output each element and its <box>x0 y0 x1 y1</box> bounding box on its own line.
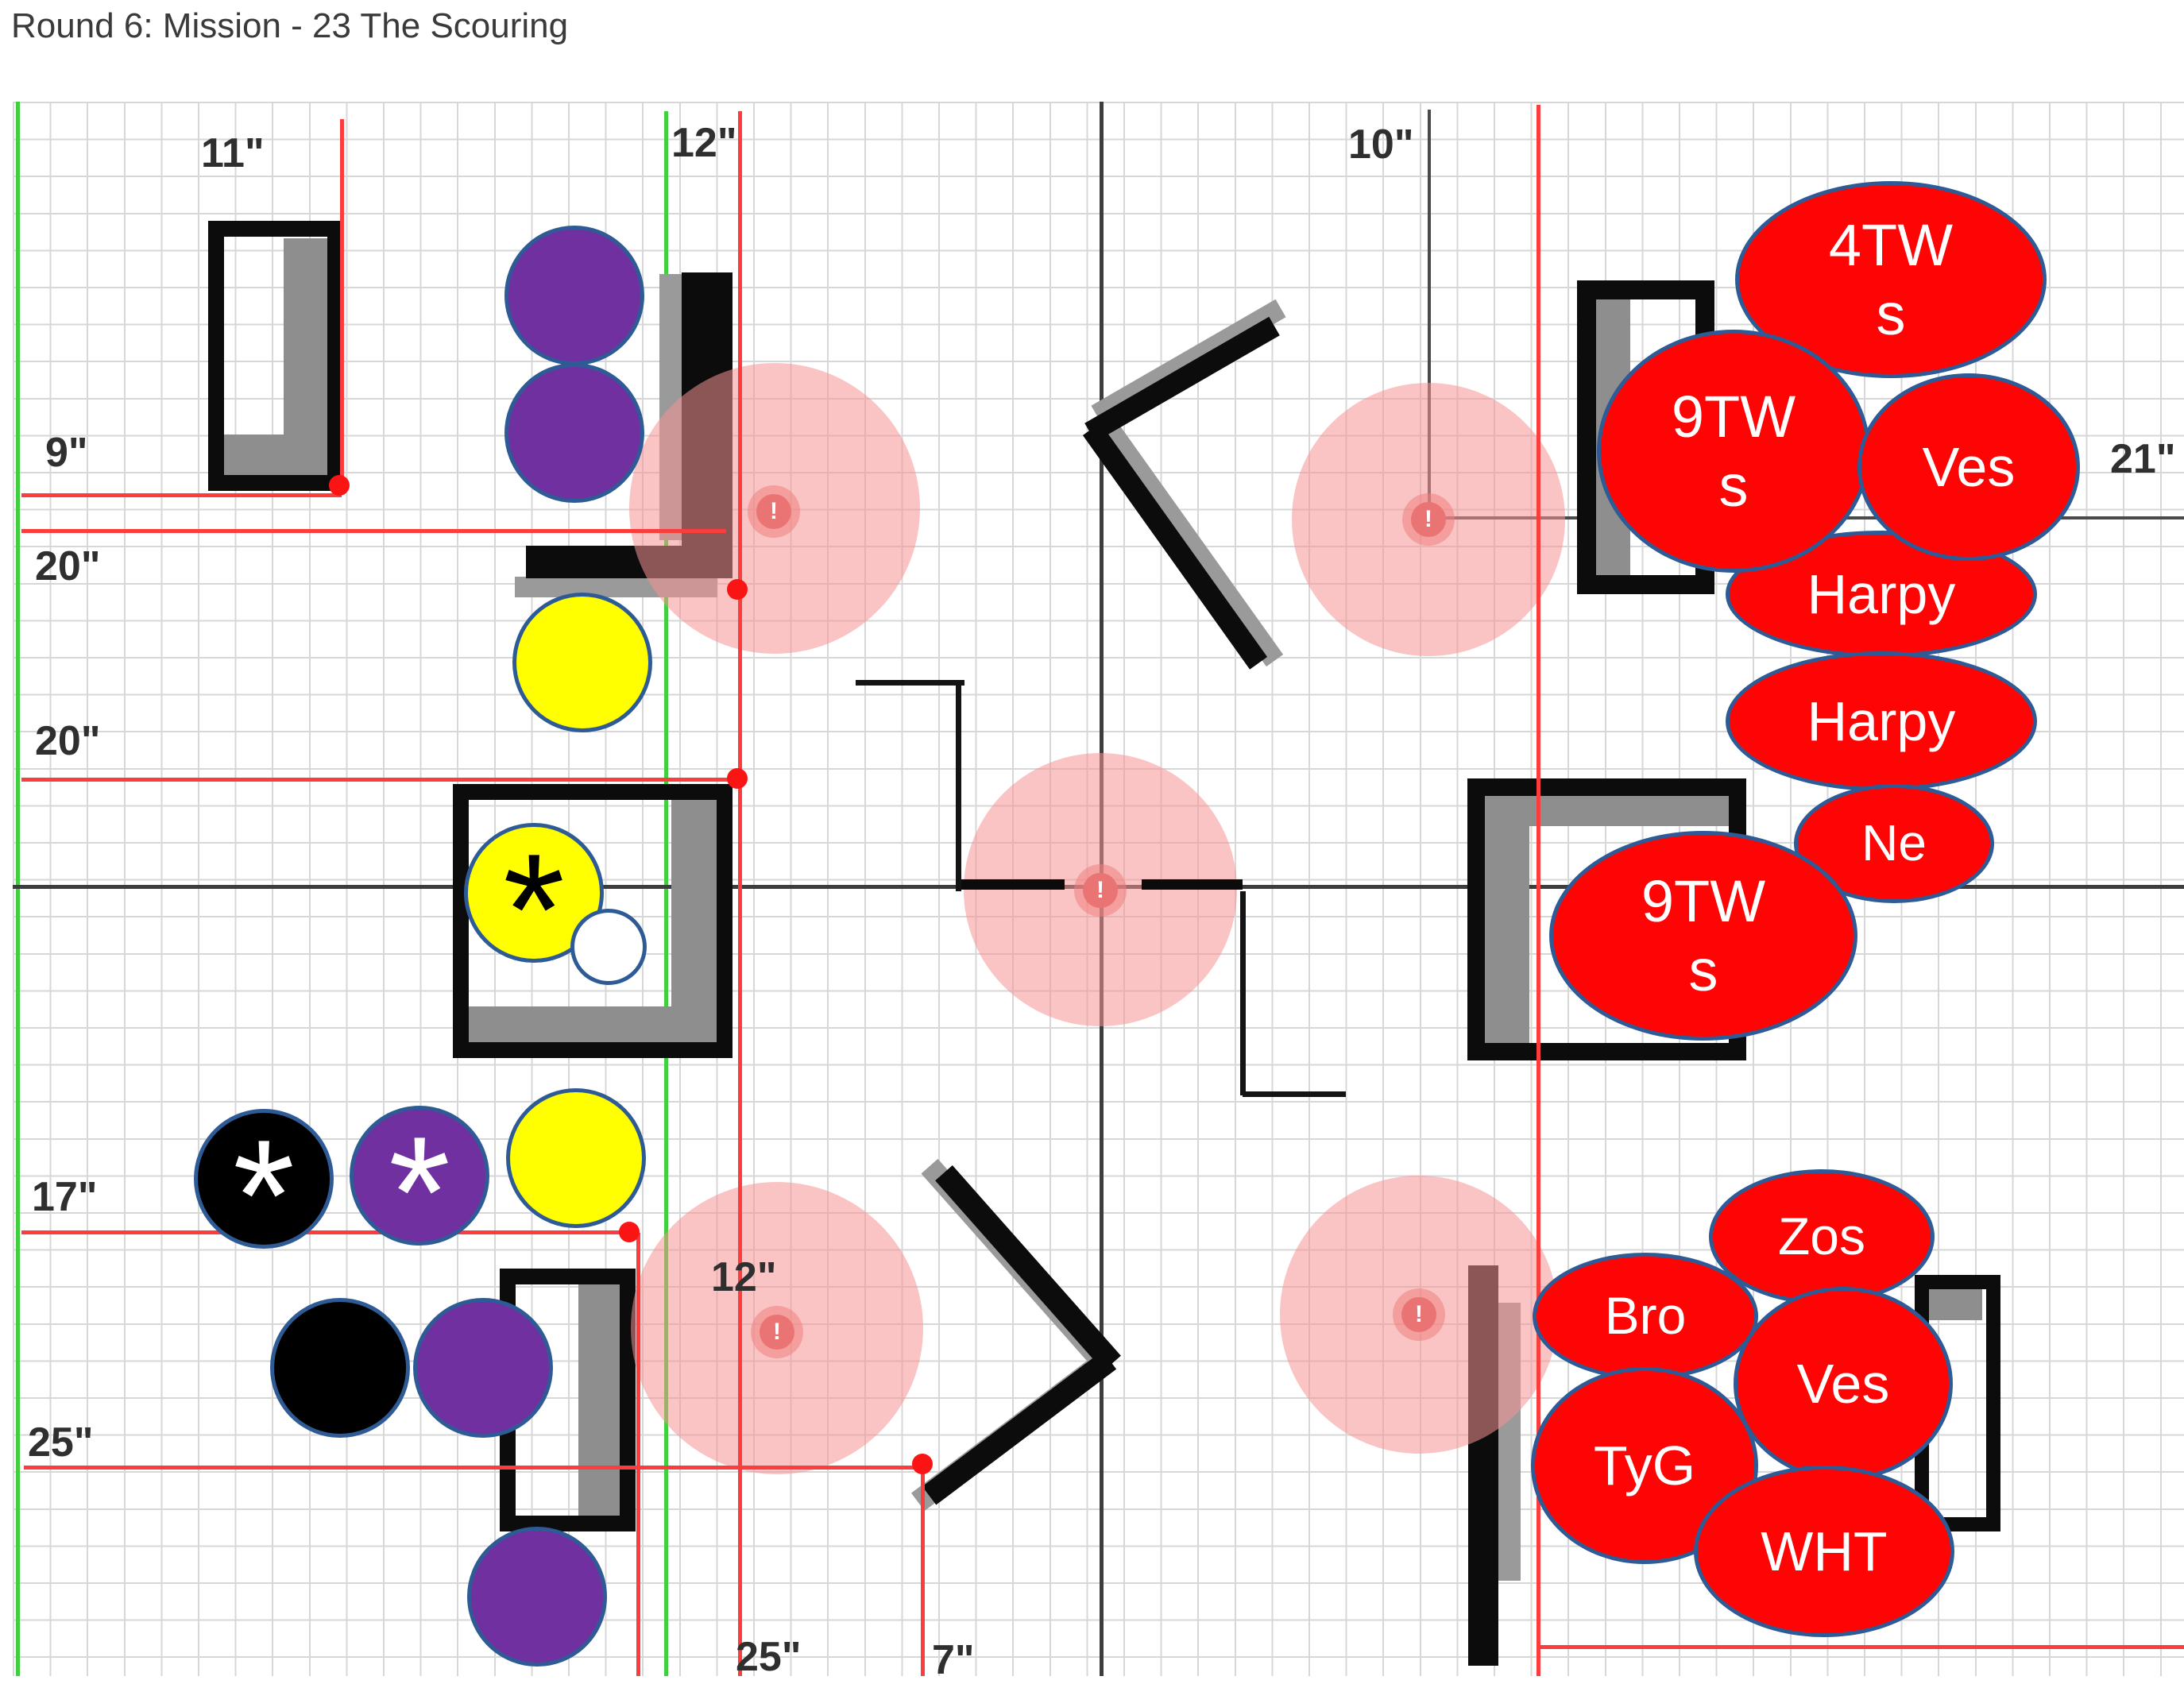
unit-wht[interactable]: WHT <box>1694 1466 1954 1637</box>
token-black-objective-holder[interactable]: * <box>194 1109 334 1249</box>
token-yellow-objective-holder-asterisk-icon: * <box>503 831 565 990</box>
zone-step-mid-right <box>1142 879 1243 890</box>
unit-bro[interactable]: Bro <box>1533 1253 1758 1380</box>
measure-dot-4 <box>619 1222 640 1242</box>
unit-9tws-top[interactable]: 9TW s <box>1597 330 1870 573</box>
measure-label-12in-bottom: 12" <box>711 1253 777 1301</box>
zone-step-bottom-v <box>1240 891 1246 1095</box>
token-purple-2[interactable] <box>504 363 644 503</box>
measure-red-20in-a <box>21 529 726 533</box>
measure-red-v2 <box>738 111 742 1676</box>
objective-2-exclamation-icon: ! <box>1411 502 1447 538</box>
measure-label-12in-top: 12" <box>671 119 737 167</box>
token-black-2[interactable] <box>270 1298 410 1438</box>
objective-2-marker-icon: ! <box>1402 493 1455 546</box>
measure-dot-5 <box>912 1454 933 1474</box>
measure-label-20in-b: 20" <box>35 717 101 765</box>
terrain-ruin-topleft <box>208 221 343 491</box>
measure-label-21in: 21" <box>2110 435 2176 483</box>
measure-red-20in-b <box>21 778 737 782</box>
token-black-objective-holder-asterisk-icon: * <box>233 1117 295 1276</box>
objective-1-marker-icon: ! <box>748 485 800 538</box>
zone-step-bottom-h <box>1243 1091 1346 1097</box>
token-white-small[interactable] <box>570 909 647 985</box>
measure-label-11in: 11" <box>201 129 265 177</box>
token-purple-3[interactable] <box>413 1298 553 1438</box>
objective-1-exclamation-icon: ! <box>756 494 792 530</box>
measure-label-17in: 17" <box>32 1173 98 1221</box>
measure-label-25in-a: 25" <box>28 1419 94 1466</box>
zone-step-mid-left <box>961 879 1065 890</box>
objective-4-exclamation-icon: ! <box>760 1315 795 1350</box>
measure-red-v5 <box>921 1462 925 1676</box>
unit-9tws-bottom[interactable]: 9TW s <box>1549 831 1857 1041</box>
unit-ves-bottom[interactable]: Ves <box>1734 1287 1953 1481</box>
unit-ves-top[interactable]: Ves <box>1857 373 2080 561</box>
token-yellow-1[interactable] <box>512 593 652 732</box>
measure-red-v4 <box>636 1233 640 1676</box>
token-yellow-2[interactable] <box>506 1088 646 1228</box>
measure-label-20in-a: 20" <box>35 543 101 590</box>
measure-dot-1 <box>329 475 350 496</box>
measure-label-10in: 10" <box>1348 121 1414 168</box>
measure-label-25in-b: 25" <box>736 1633 802 1681</box>
token-purple-4[interactable] <box>467 1527 607 1667</box>
measure-red-9in <box>21 493 342 497</box>
deploy-line-green-left <box>16 102 20 1676</box>
measure-dot-3 <box>727 768 748 789</box>
objective-4-marker-icon: ! <box>751 1306 803 1358</box>
measure-red-bottom-right <box>1538 1645 2184 1649</box>
unit-harpy-2[interactable]: Harpy <box>1726 651 2037 791</box>
objective-5-marker-icon: ! <box>1393 1288 1445 1341</box>
token-purple-1[interactable] <box>504 226 644 365</box>
zone-step-top-h <box>856 680 964 686</box>
zone-step-top-v <box>956 682 961 891</box>
token-purple-objective-holder[interactable]: * <box>350 1106 489 1246</box>
page-title: Round 6: Mission - 23 The Scouring <box>11 6 568 46</box>
measure-label-9in: 9" <box>45 429 88 477</box>
objective-center-exclamation-icon: ! <box>1083 873 1119 909</box>
objective-center-marker-icon: ! <box>1074 864 1127 917</box>
measure-label-7in: 7" <box>932 1636 975 1684</box>
measure-dot-2 <box>727 579 748 600</box>
measure-red-17in <box>21 1230 629 1234</box>
measure-red-25in <box>24 1466 922 1470</box>
token-purple-objective-holder-asterisk-icon: * <box>388 1114 450 1273</box>
objective-5-exclamation-icon: ! <box>1401 1297 1437 1333</box>
measure-red-v1 <box>340 119 344 488</box>
